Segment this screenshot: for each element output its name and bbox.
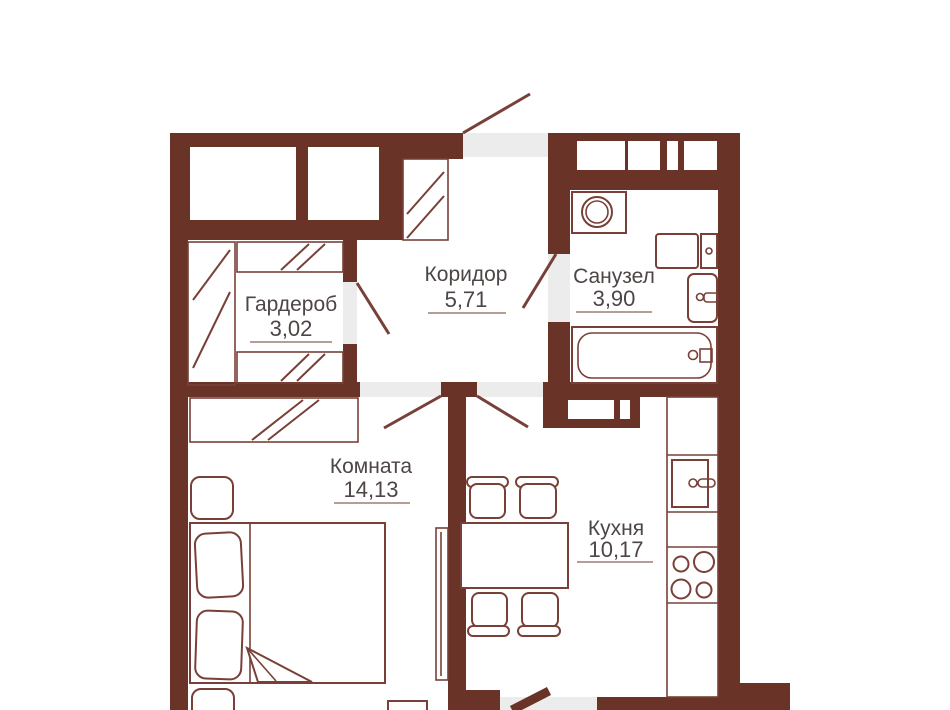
chair-seat	[522, 593, 558, 627]
room-area-value: 3,90	[593, 286, 636, 311]
shaft-opening	[190, 147, 296, 220]
room-name: Коридор	[425, 263, 508, 286]
pillow	[194, 532, 243, 598]
entry-door-opening	[463, 133, 548, 157]
bed	[190, 523, 385, 683]
floor-plan: Гардероб 3,02 Коридор 5,71 Санузел 3,90 …	[0, 0, 950, 710]
wardrobe-rack-top-icon	[237, 242, 343, 272]
wardrobe-door-opening	[343, 282, 357, 344]
room-area-value: 14,13	[343, 477, 398, 502]
room-shelf-icon	[190, 398, 358, 442]
room-area-value: 10,17	[588, 537, 643, 562]
label-room: Комната 14,13	[330, 455, 413, 503]
room-name: Санузел	[573, 265, 655, 288]
label-bathroom: Санузел 3,90	[573, 265, 655, 312]
wardrobe-rack-left-icon	[188, 242, 235, 385]
wall-top	[403, 133, 463, 159]
label-wardrobe: Гардероб 3,02	[245, 293, 337, 342]
tv-unit	[436, 528, 448, 680]
dining-set	[461, 477, 568, 636]
wall-wardrobe-upper	[343, 240, 357, 282]
vent-shaft	[577, 141, 625, 170]
dresser	[388, 701, 427, 710]
kitchen-opening	[477, 382, 543, 397]
nightstand-top	[191, 477, 233, 519]
kitchen-door-leaf	[477, 396, 528, 427]
table	[461, 523, 568, 588]
wall-bathroom-upper	[548, 190, 570, 254]
nightstand-bottom	[192, 689, 234, 710]
chair-seat	[470, 484, 505, 518]
floor-plan-drawing: Гардероб 3,02 Коридор 5,71 Санузел 3,90 …	[0, 0, 950, 710]
toilet-icon	[656, 234, 717, 268]
pillow	[195, 610, 243, 680]
label-corridor: Коридор 5,71	[425, 263, 508, 313]
corridor-closet-icon	[403, 159, 448, 240]
wall-right	[718, 133, 740, 685]
room-area-value: 3,02	[270, 316, 313, 341]
room-door-opening	[360, 382, 441, 397]
wall-kitchen-bottom	[448, 690, 500, 710]
wall-stub	[441, 382, 477, 397]
chair-seat	[520, 484, 556, 518]
bathroom-sink-icon	[688, 274, 718, 322]
kitchen-counter	[667, 397, 718, 697]
vent-shaft	[667, 141, 678, 170]
room-name: Комната	[330, 455, 413, 478]
wall-bathroom-lower	[548, 322, 570, 383]
vent-shaft	[684, 141, 717, 170]
room-door-leaf	[384, 396, 441, 428]
bathtub-icon	[572, 327, 717, 383]
room-area-value: 5,71	[445, 287, 488, 312]
wall-bathroom-bottom	[543, 382, 718, 397]
washing-machine-icon	[572, 192, 626, 233]
shaft-opening	[308, 147, 379, 220]
wall-wardrobe-lower	[343, 344, 357, 385]
chair-back	[468, 626, 509, 636]
entry-door-leaf	[463, 94, 530, 133]
wall-bottom-right-ell	[718, 683, 790, 710]
chair-seat	[472, 593, 507, 627]
vent-shaft	[628, 141, 660, 170]
wardrobe-door-leaf	[357, 283, 389, 334]
wardrobe-rack-bottom-icon	[237, 352, 343, 383]
vent-shaft	[620, 400, 630, 419]
room-furniture	[190, 398, 448, 710]
room-name: Гардероб	[245, 293, 337, 316]
label-kitchen: Кухня 10,17	[577, 517, 653, 562]
vent-shaft	[568, 400, 614, 419]
chair-back	[518, 626, 560, 636]
